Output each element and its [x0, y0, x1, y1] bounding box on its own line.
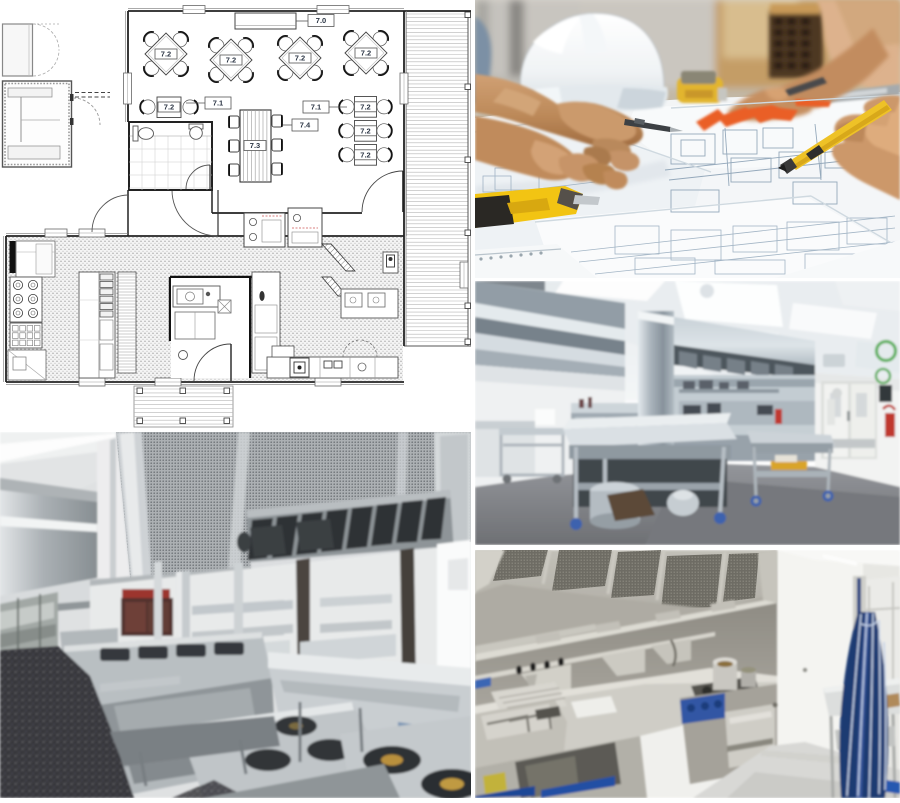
svg-text:7.2: 7.2: [361, 49, 371, 58]
svg-text:7.2: 7.2: [360, 103, 370, 112]
svg-text:7.1: 7.1: [213, 99, 223, 108]
svg-text:7.2: 7.2: [164, 103, 174, 112]
svg-text:7.2: 7.2: [360, 127, 370, 136]
svg-text:7.2: 7.2: [360, 151, 370, 160]
svg-text:7.3: 7.3: [250, 141, 260, 150]
svg-text:7.4: 7.4: [300, 121, 311, 130]
svg-text:7.2: 7.2: [161, 50, 171, 59]
svg-text:7.1: 7.1: [311, 103, 321, 112]
svg-text:7.0: 7.0: [316, 16, 326, 25]
svg-text:7.2: 7.2: [295, 54, 305, 63]
svg-text:7.2: 7.2: [226, 56, 236, 65]
